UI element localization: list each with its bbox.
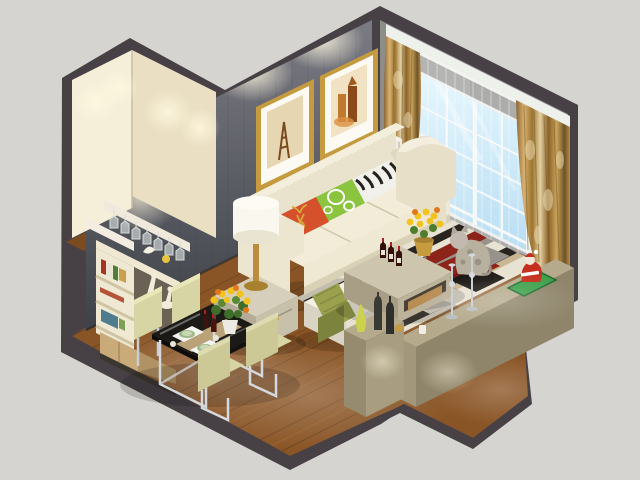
bird-figurine	[162, 255, 170, 263]
room-svg	[0, 0, 640, 480]
isometric-room-render	[0, 0, 640, 480]
floor-cup	[419, 325, 426, 334]
window-light-pool	[420, 270, 580, 330]
